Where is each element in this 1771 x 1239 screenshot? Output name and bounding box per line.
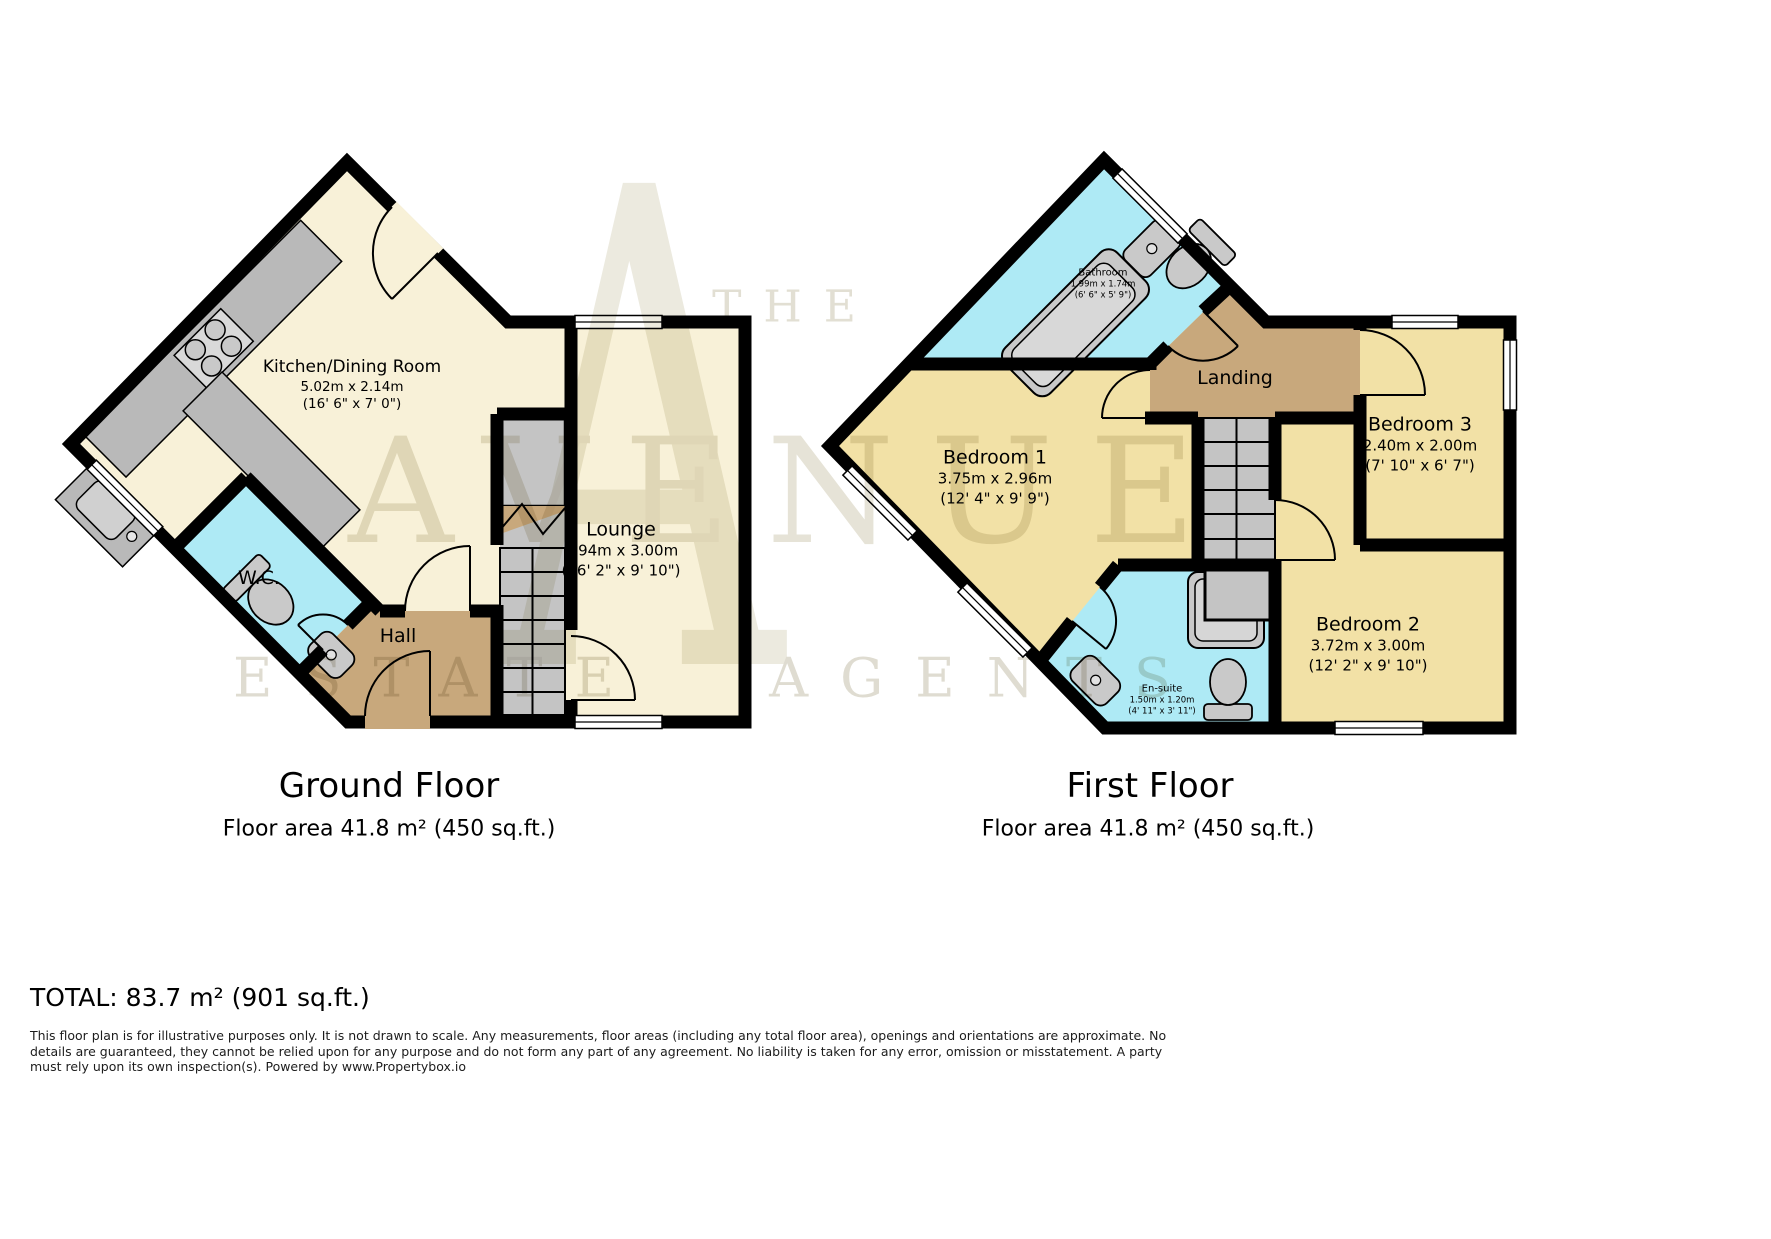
cupboard [1205, 565, 1275, 620]
staircase-first [1198, 418, 1275, 620]
room-label-hall: Hall [380, 624, 417, 648]
disclaimer-text: This floor plan is for illustrative purp… [30, 1028, 1175, 1075]
first-floor-title: First Floor [1067, 766, 1234, 806]
window-bedroom3-top [1392, 316, 1458, 329]
window-lounge-bottom [575, 716, 662, 729]
window-bedroom3-right [1504, 340, 1517, 410]
room-label-wc: W.C. [238, 566, 280, 590]
room-label-ensuite: En-suite 1.50m x 1.20m (4' 11" x 3' 11") [1128, 683, 1195, 716]
room-label-bathroom: Bathroom 1.99m x 1.74m (6' 6" x 5' 9") [1071, 267, 1136, 300]
staircase-ground [500, 418, 565, 715]
ground-floor-title: Ground Floor [279, 766, 499, 806]
room-label-lounge: Lounge 4.94m x 3.00m (16' 2" x 9' 10") [562, 518, 681, 581]
room-label-kitchen: Kitchen/Dining Room 5.02m x 2.14m (16' 6… [263, 357, 441, 413]
room-label-bedroom3: Bedroom 3 2.40m x 2.00m (7' 10" x 6' 7") [1363, 413, 1477, 476]
room-label-landing: Landing [1197, 366, 1273, 390]
front-door-opening [365, 715, 430, 729]
first-floor-area: Floor area 41.8 m² (450 sq.ft.) [982, 817, 1315, 842]
window-lounge-top [575, 316, 662, 329]
room-label-bedroom2: Bedroom 2 3.72m x 3.00m (12' 2" x 9' 10"… [1309, 613, 1428, 676]
total-floor-area: TOTAL: 83.7 m² (901 sq.ft.) [30, 983, 370, 1012]
window-bedroom2-bottom [1335, 722, 1423, 735]
room-label-bedroom1: Bedroom 1 3.75m x 2.96m (12' 4" x 9' 9") [938, 446, 1052, 509]
ground-floor-area: Floor area 41.8 m² (450 sq.ft.) [223, 817, 556, 842]
